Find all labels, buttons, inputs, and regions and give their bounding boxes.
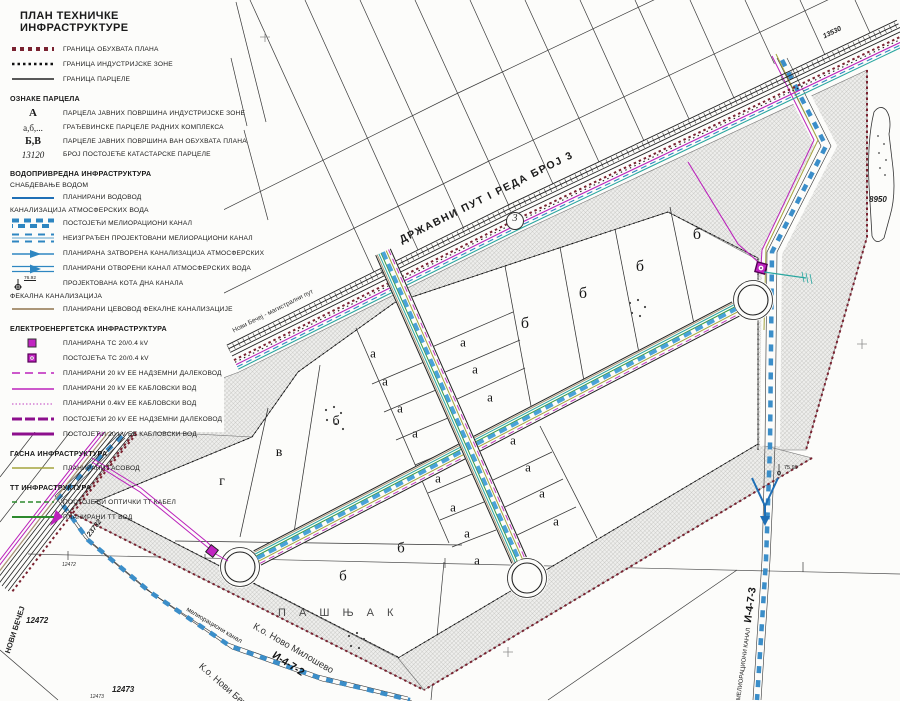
legend-item-parcel-ab: а,б,... ГРАЂЕВИНСКЕ ПАРЦЕЛЕ РАДНИХ КОМПЛ… [10,123,224,133]
legend-item-vodovod: ПЛАНИРАНИ ВОДОВОД [10,192,224,204]
legend-panel: ПЛАН ТЕХНИЧКЕ ИНФРАСТРУКТУРЕ ГРАНИЦА ОБУ… [0,0,224,432]
plan-boundary-swatch [10,43,56,55]
tt-heading: ТТ ИНФРАСТРУКТУРА [10,483,224,492]
ts-planned-swatch [10,337,56,349]
legend-item-ts-planned: ПЛАНИРАНА ТС 20/0.4 kV [10,337,224,349]
tt-planned-swatch [10,511,56,523]
elektro-heading: ЕЛЕКТРОЕНЕРГЕТСКА ИНФРАСТРУКТУРА [10,324,224,333]
open-channel-swatch [10,263,56,275]
legend-item-kota: 76.92 ПРОЈЕКТОВАНА КОТА ДНА КАНАЛА [10,278,224,290]
legend-item-ts-existing: ПОСТОЈЕЋА ТС 20/0.4 kV [10,352,224,364]
tt-existing-swatch [10,496,56,508]
legend-item-fecal: ПЛАНИРАНИ ЦЕВОВОД ФЕКАЛНЕ КАНАЛИЗАЦИЈЕ [10,303,224,315]
legend-item-open-channel: ПЛАНИРАНИ ОТВОРЕНИ КАНАЛ АТМОСФЕРСКИХ ВО… [10,263,224,275]
legend-item-closed-sewer: ПЛАНИРАНА ЗАТВОРЕНА КАНАЛИЗАЦИЈА АТМОСФЕ… [10,248,224,260]
fecal-swatch [10,303,56,315]
legend-item-gasovod: ПЛАНИРАНИ ГАСОВОД [10,462,224,474]
legend-item-parcel-a: А ПАРЦЕЛА ЈАВНИХ ПОВРШИНА ИНДУСТРИЈСКЕ З… [10,107,224,119]
vodo-heading: ВОДОПРИВРЕДНА ИНФРАСТРУКТУРА [10,169,224,178]
legend-item-20kv-overhead-existing: ПОСТОЈЕЋИ 20 kV ЕЕ НАДЗЕМНИ ДАЛЕКОВОД [10,413,224,425]
legend-item-tt-planned: ПЛАНИРАНИ ТТ ВОД [10,511,224,523]
lv-cable-planned-swatch [10,398,56,410]
legend-item-parcel-number: 13120 БРОЈ ПОСТОЈЕЋЕ КАТАСТАРСКЕ ПАРЦЕЛЕ [10,150,224,160]
vodovod-swatch [10,192,56,204]
oznake-heading: ОЗНАКЕ ПАРЦЕЛА [10,94,224,103]
legend-item-existing-canal: ПОСТОЈЕЋИ МЕЛИОРАЦИОНИ КАНАЛ [10,217,224,229]
cable-existing-swatch [10,428,56,440]
plan-page: 3 гвбаааааааббббааааааааббДРЖАВНИ ПУТ I … [0,0,900,701]
legend-item-projected-canal: НЕИЗГРАЂЕН ПРОЈЕКТОВАНИ МЕЛИОРАЦИОНИ КАН… [10,232,224,244]
cable-planned-swatch [10,383,56,395]
legend-item-industrial-boundary: ГРАНИЦА ИНДУСТРИЈСКЕ ЗОНЕ [10,58,224,70]
overhead-existing-swatch [10,413,56,425]
gas-heading: ГАСНА ИНФРАСТРУКТУРА [10,449,224,458]
closed-sewer-swatch [10,248,56,260]
existing-canal-swatch [10,217,56,229]
industrial-boundary-swatch [10,58,56,70]
legend-item-tt-existing: ПОСТОЈЕЋИ ОПТИЧКИ ТТ КАБЕЛ [10,496,224,508]
legend-item-20kv-cable-planned: ПЛАНИРАНИ 20 kV ЕЕ КАБЛОВСКИ ВОД [10,383,224,395]
parcel-boundary-swatch [10,73,56,85]
legend-item-plan-boundary: ГРАНИЦА ОБУХВАТА ПЛАНА [10,43,224,55]
legend-item-04kv-cable-planned: ПЛАНИРАНИ 0.4kV ЕЕ КАБЛОВСКИ ВОД [10,398,224,410]
projected-canal-swatch [10,232,56,244]
kota-swatch: 76.92 [10,278,56,290]
legend-item-20kv-cable-existing: ПОСТОЈЕЋИ 20 kV ЕЕ КАБЛОВСКИ ВОД [10,428,224,440]
gas-swatch [10,462,56,474]
legend-title: ПЛАН ТЕХНИЧКЕ ИНФРАСТРУКТУРЕ [20,10,224,34]
legend-item-parcel-boundary: ГРАНИЦА ПАРЦЕЛЕ [10,73,224,85]
water-supply-subheading: СНАБДЕВАЊЕ ВОДОМ [10,182,224,189]
legend-item-parcel-bv: Б,В ПАРЦЕЛЕ ЈАВНИХ ПОВРШИНА ВАН ОБУХВАТА… [10,136,224,147]
ts-existing-swatch [10,352,56,364]
storm-subheading: КАНАЛИЗАЦИЈА АТМОСФЕРСКИХ ВОДА [10,207,224,214]
legend-item-20kv-overhead-planned: ПЛАНИРАНИ 20 kV ЕЕ НАДЗЕМНИ ДАЛЕКОВОД [10,367,224,379]
fecal-subheading: ФЕКАЛНА КАНАЛИЗАЦИЈА [10,293,224,300]
overhead-planned-swatch [10,367,56,379]
